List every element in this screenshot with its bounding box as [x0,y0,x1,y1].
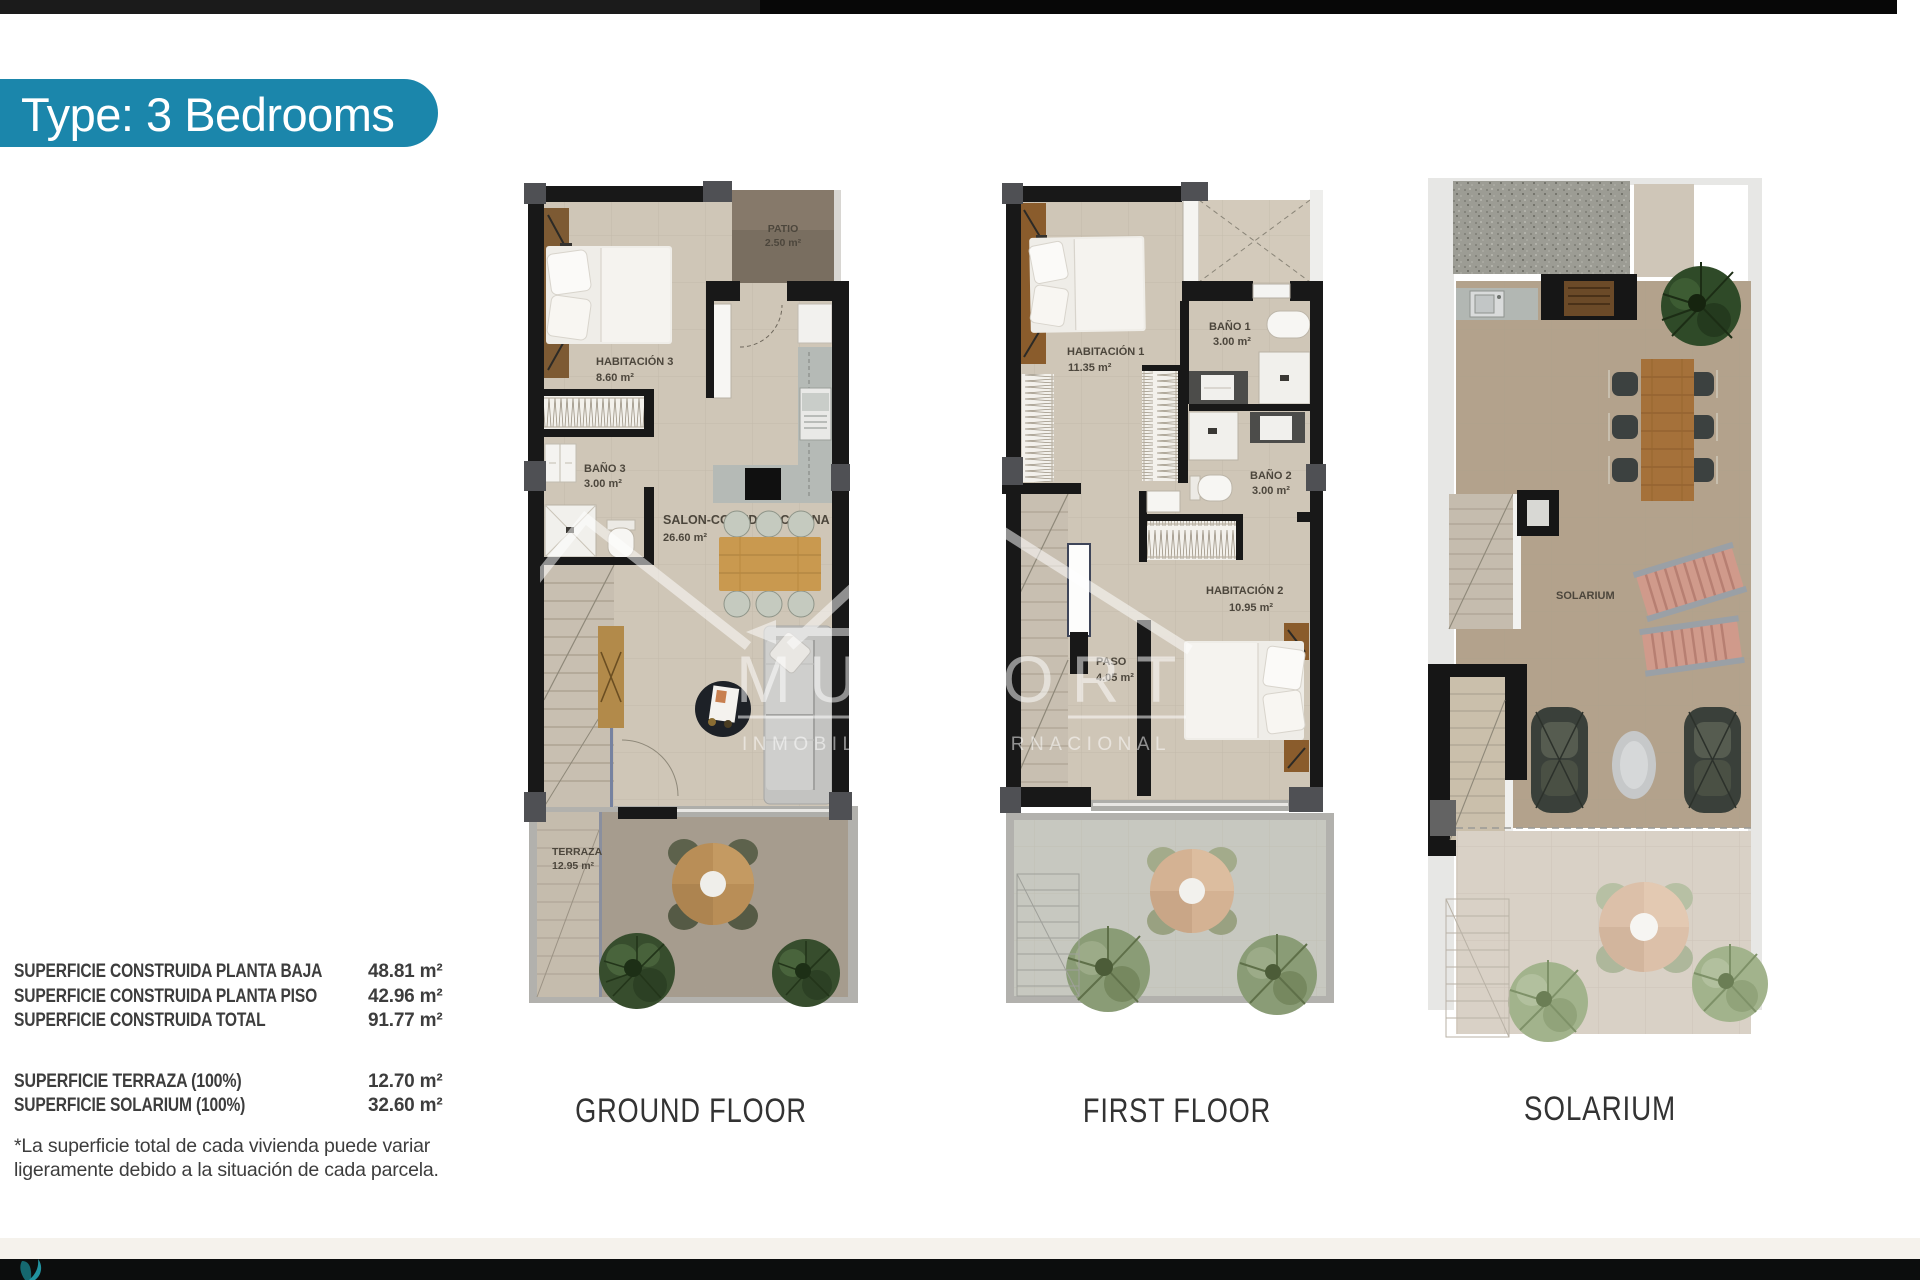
svg-text:2.50 m²: 2.50 m² [765,237,802,249]
svg-text:PATIO: PATIO [768,223,799,235]
svg-text:12.95 m²: 12.95 m² [552,860,595,872]
svg-text:HABITACIÓN 3: HABITACIÓN 3 [596,355,673,368]
svg-text:11.35 m²: 11.35 m² [1068,362,1112,374]
svg-text:HABITACIÓN 1: HABITACIÓN 1 [1067,345,1144,358]
svg-text:8.60 m²: 8.60 m² [596,372,634,384]
svg-text:MURPORT: MURPORT [736,642,1194,716]
svg-text:TERRAZA: TERRAZA [552,846,603,858]
svg-text:BAÑO 1: BAÑO 1 [1209,320,1251,333]
svg-text:3.00 m²: 3.00 m² [1213,336,1251,348]
svg-text:INMOBILIARIA INTERNACIONAL: INMOBILIARIA INTERNACIONAL [742,734,1171,755]
svg-text:SOLARIUM: SOLARIUM [1556,590,1615,602]
